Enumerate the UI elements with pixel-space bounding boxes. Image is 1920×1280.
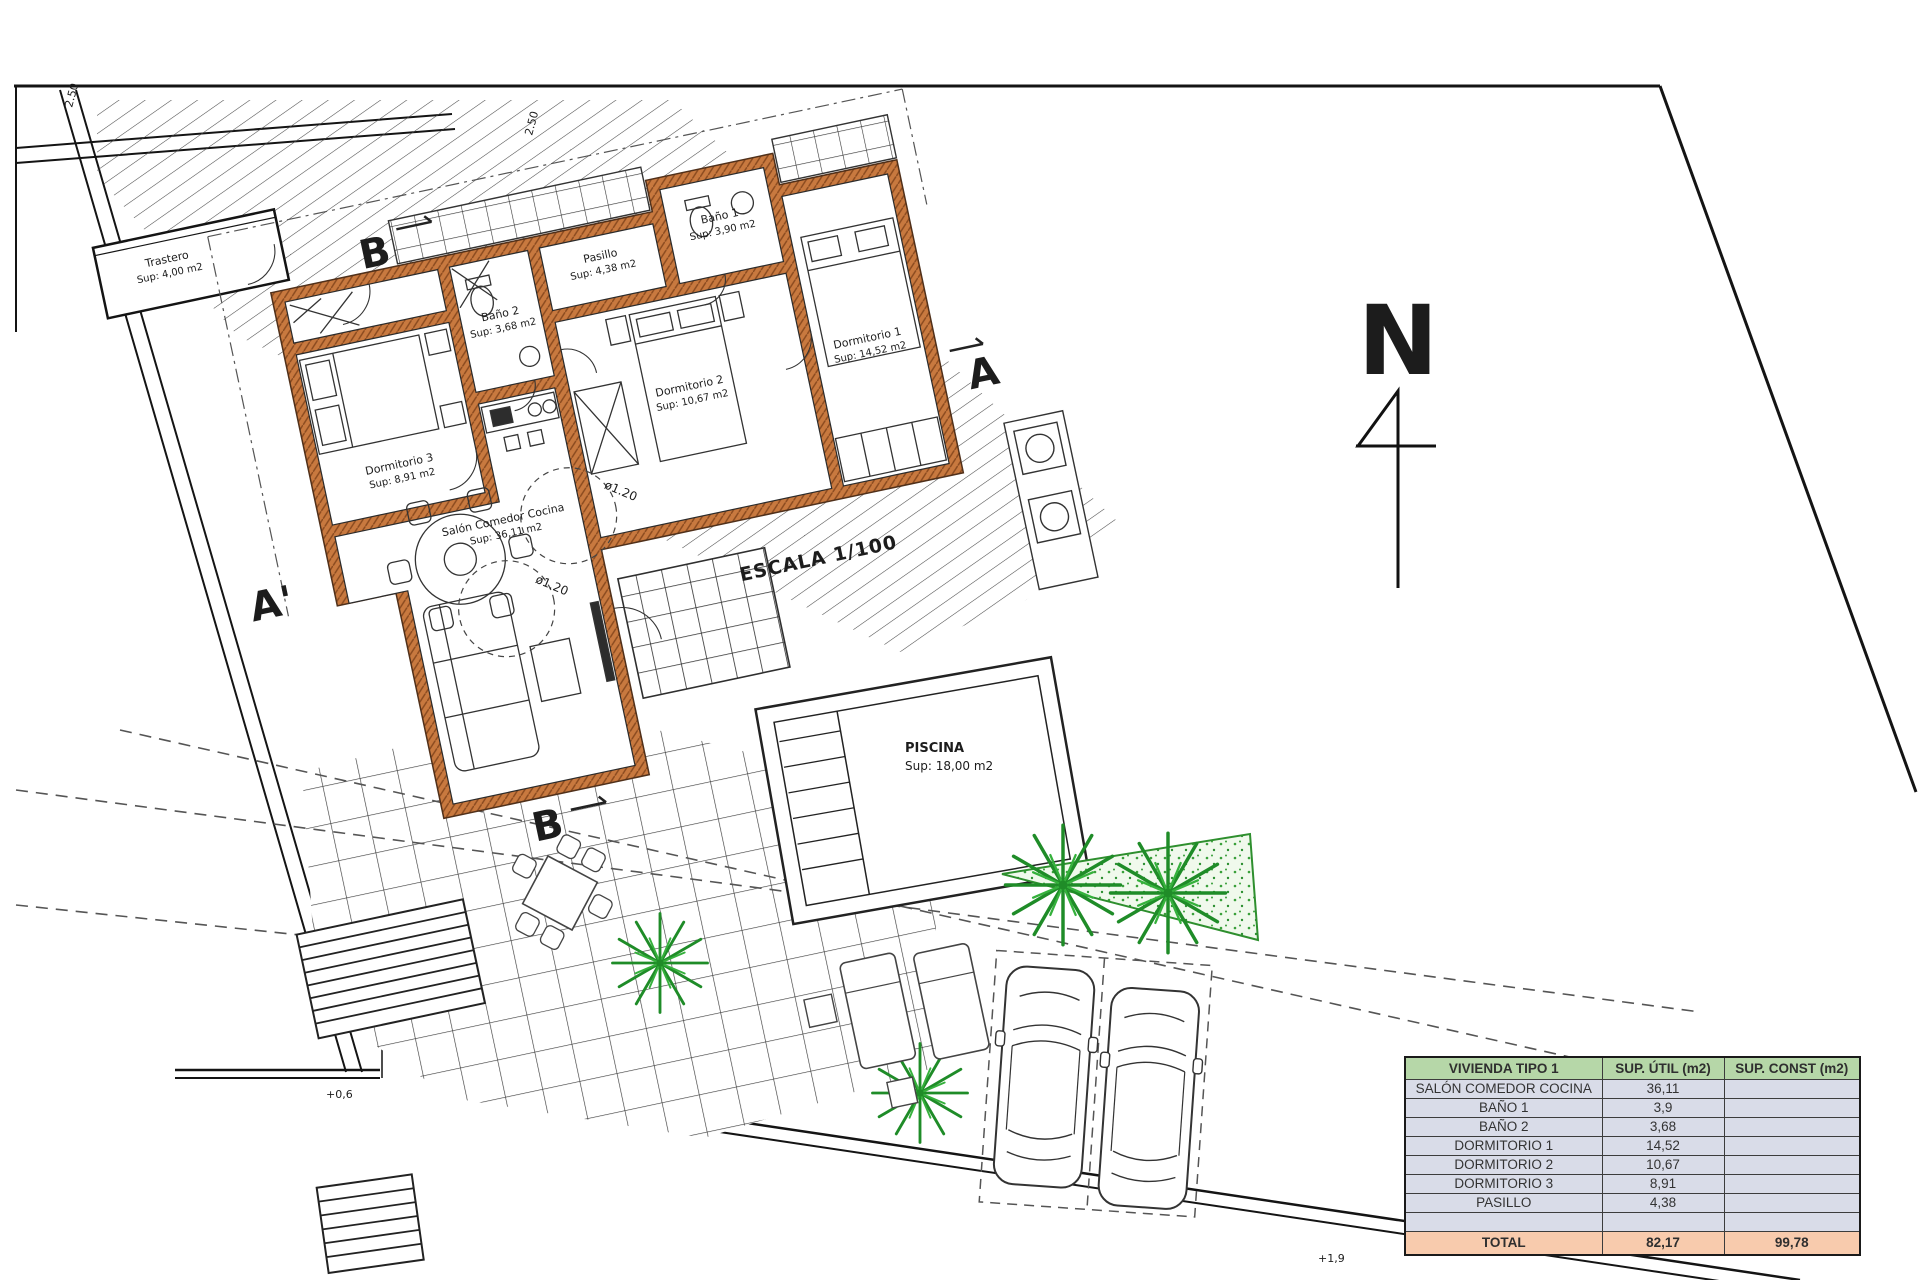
total-const: 99,78 [1724,1232,1860,1256]
section-marker-a-prime: A' [246,577,298,631]
table-row: BAÑO 2 3,68 [1405,1118,1860,1137]
areas-table: VIVIENDA TIPO 1 SUP. ÚTIL (m2) SUP. CONS… [1404,1056,1861,1256]
row-util: 8,91 [1602,1175,1724,1194]
level-marker-right: +1,9 [1318,1252,1345,1265]
row-util [1602,1213,1724,1232]
row-name: SALÓN COMEDOR COCINA [1405,1080,1602,1099]
car [1090,986,1207,1211]
table-row: DORMITORIO 2 10,67 [1405,1156,1860,1175]
row-const [1724,1137,1860,1156]
row-name: DORMITORIO 3 [1405,1175,1602,1194]
row-name: DORMITORIO 2 [1405,1156,1602,1175]
floor-plan-sheet: PISCINA Sup: 18,00 m2 [0,0,1920,1280]
row-util: 3,68 [1602,1118,1724,1137]
north-arrow: N [1356,285,1438,588]
table-row: DORMITORIO 3 8,91 [1405,1175,1860,1194]
table-header-const: SUP. CONST (m2) [1724,1057,1860,1080]
row-util: 4,38 [1602,1194,1724,1213]
table-row: DORMITORIO 1 14,52 [1405,1137,1860,1156]
table-row: BAÑO 1 3,9 [1405,1099,1860,1118]
row-name: BAÑO 1 [1405,1099,1602,1118]
row-util: 3,9 [1602,1099,1724,1118]
north-label: N [1358,285,1438,397]
row-name: BAÑO 2 [1405,1118,1602,1137]
pool-area-label: Sup: 18,00 m2 [905,759,993,773]
entry-stairs [317,1174,424,1273]
row-util: 36,11 [1602,1080,1724,1099]
north-arrow-head [1358,391,1398,446]
total-util: 82,17 [1602,1232,1724,1256]
row-name [1405,1213,1602,1232]
row-const [1724,1194,1860,1213]
parking [979,950,1212,1216]
table-header-util: SUP. ÚTIL (m2) [1602,1057,1724,1080]
row-name: DORMITORIO 1 [1405,1137,1602,1156]
row-const [1724,1156,1860,1175]
row-const [1724,1213,1860,1232]
row-const [1724,1175,1860,1194]
row-util: 14,52 [1602,1137,1724,1156]
table-row: PASILLO 4,38 [1405,1194,1860,1213]
row-const [1724,1118,1860,1137]
car [986,965,1103,1190]
pool-label: PISCINA [905,741,964,756]
areas-table-header: VIVIENDA TIPO 1 SUP. ÚTIL (m2) SUP. CONS… [1405,1057,1860,1080]
level-marker-left: +0,6 [326,1088,353,1101]
table-row: SALÓN COMEDOR COCINA 36,11 [1405,1080,1860,1099]
row-const [1724,1080,1860,1099]
table-total-row: TOTAL 82,17 99,78 [1405,1232,1860,1256]
table-row [1405,1213,1860,1232]
table-header-room: VIVIENDA TIPO 1 [1405,1057,1602,1080]
row-name: PASILLO [1405,1194,1602,1213]
row-const [1724,1099,1860,1118]
row-util: 10,67 [1602,1156,1724,1175]
total-label: TOTAL [1405,1232,1602,1256]
